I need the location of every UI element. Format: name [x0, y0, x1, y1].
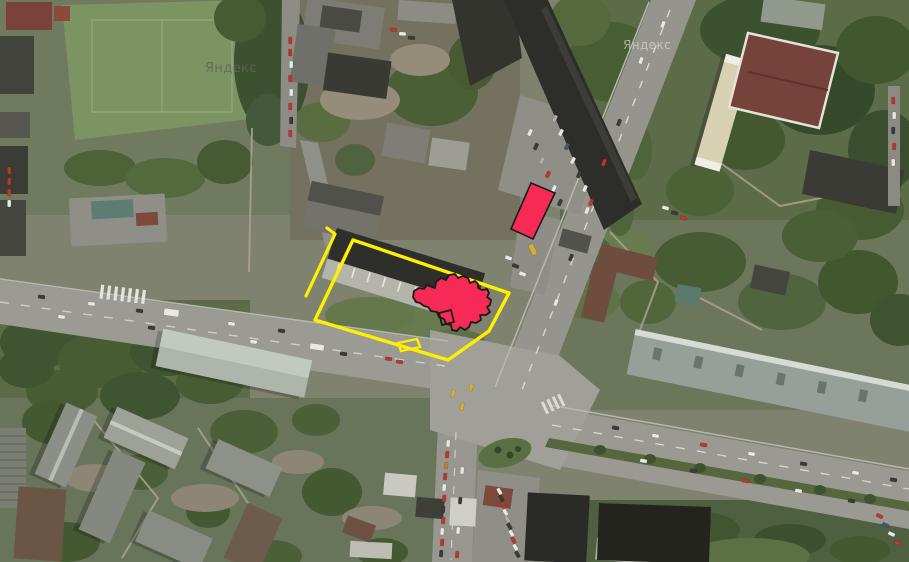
marker-rectangle[interactable]: [511, 183, 555, 239]
satellite-map-viewport[interactable]: Яндекс Яндекс: [0, 0, 909, 562]
map-annotations-overlay: [0, 0, 909, 562]
